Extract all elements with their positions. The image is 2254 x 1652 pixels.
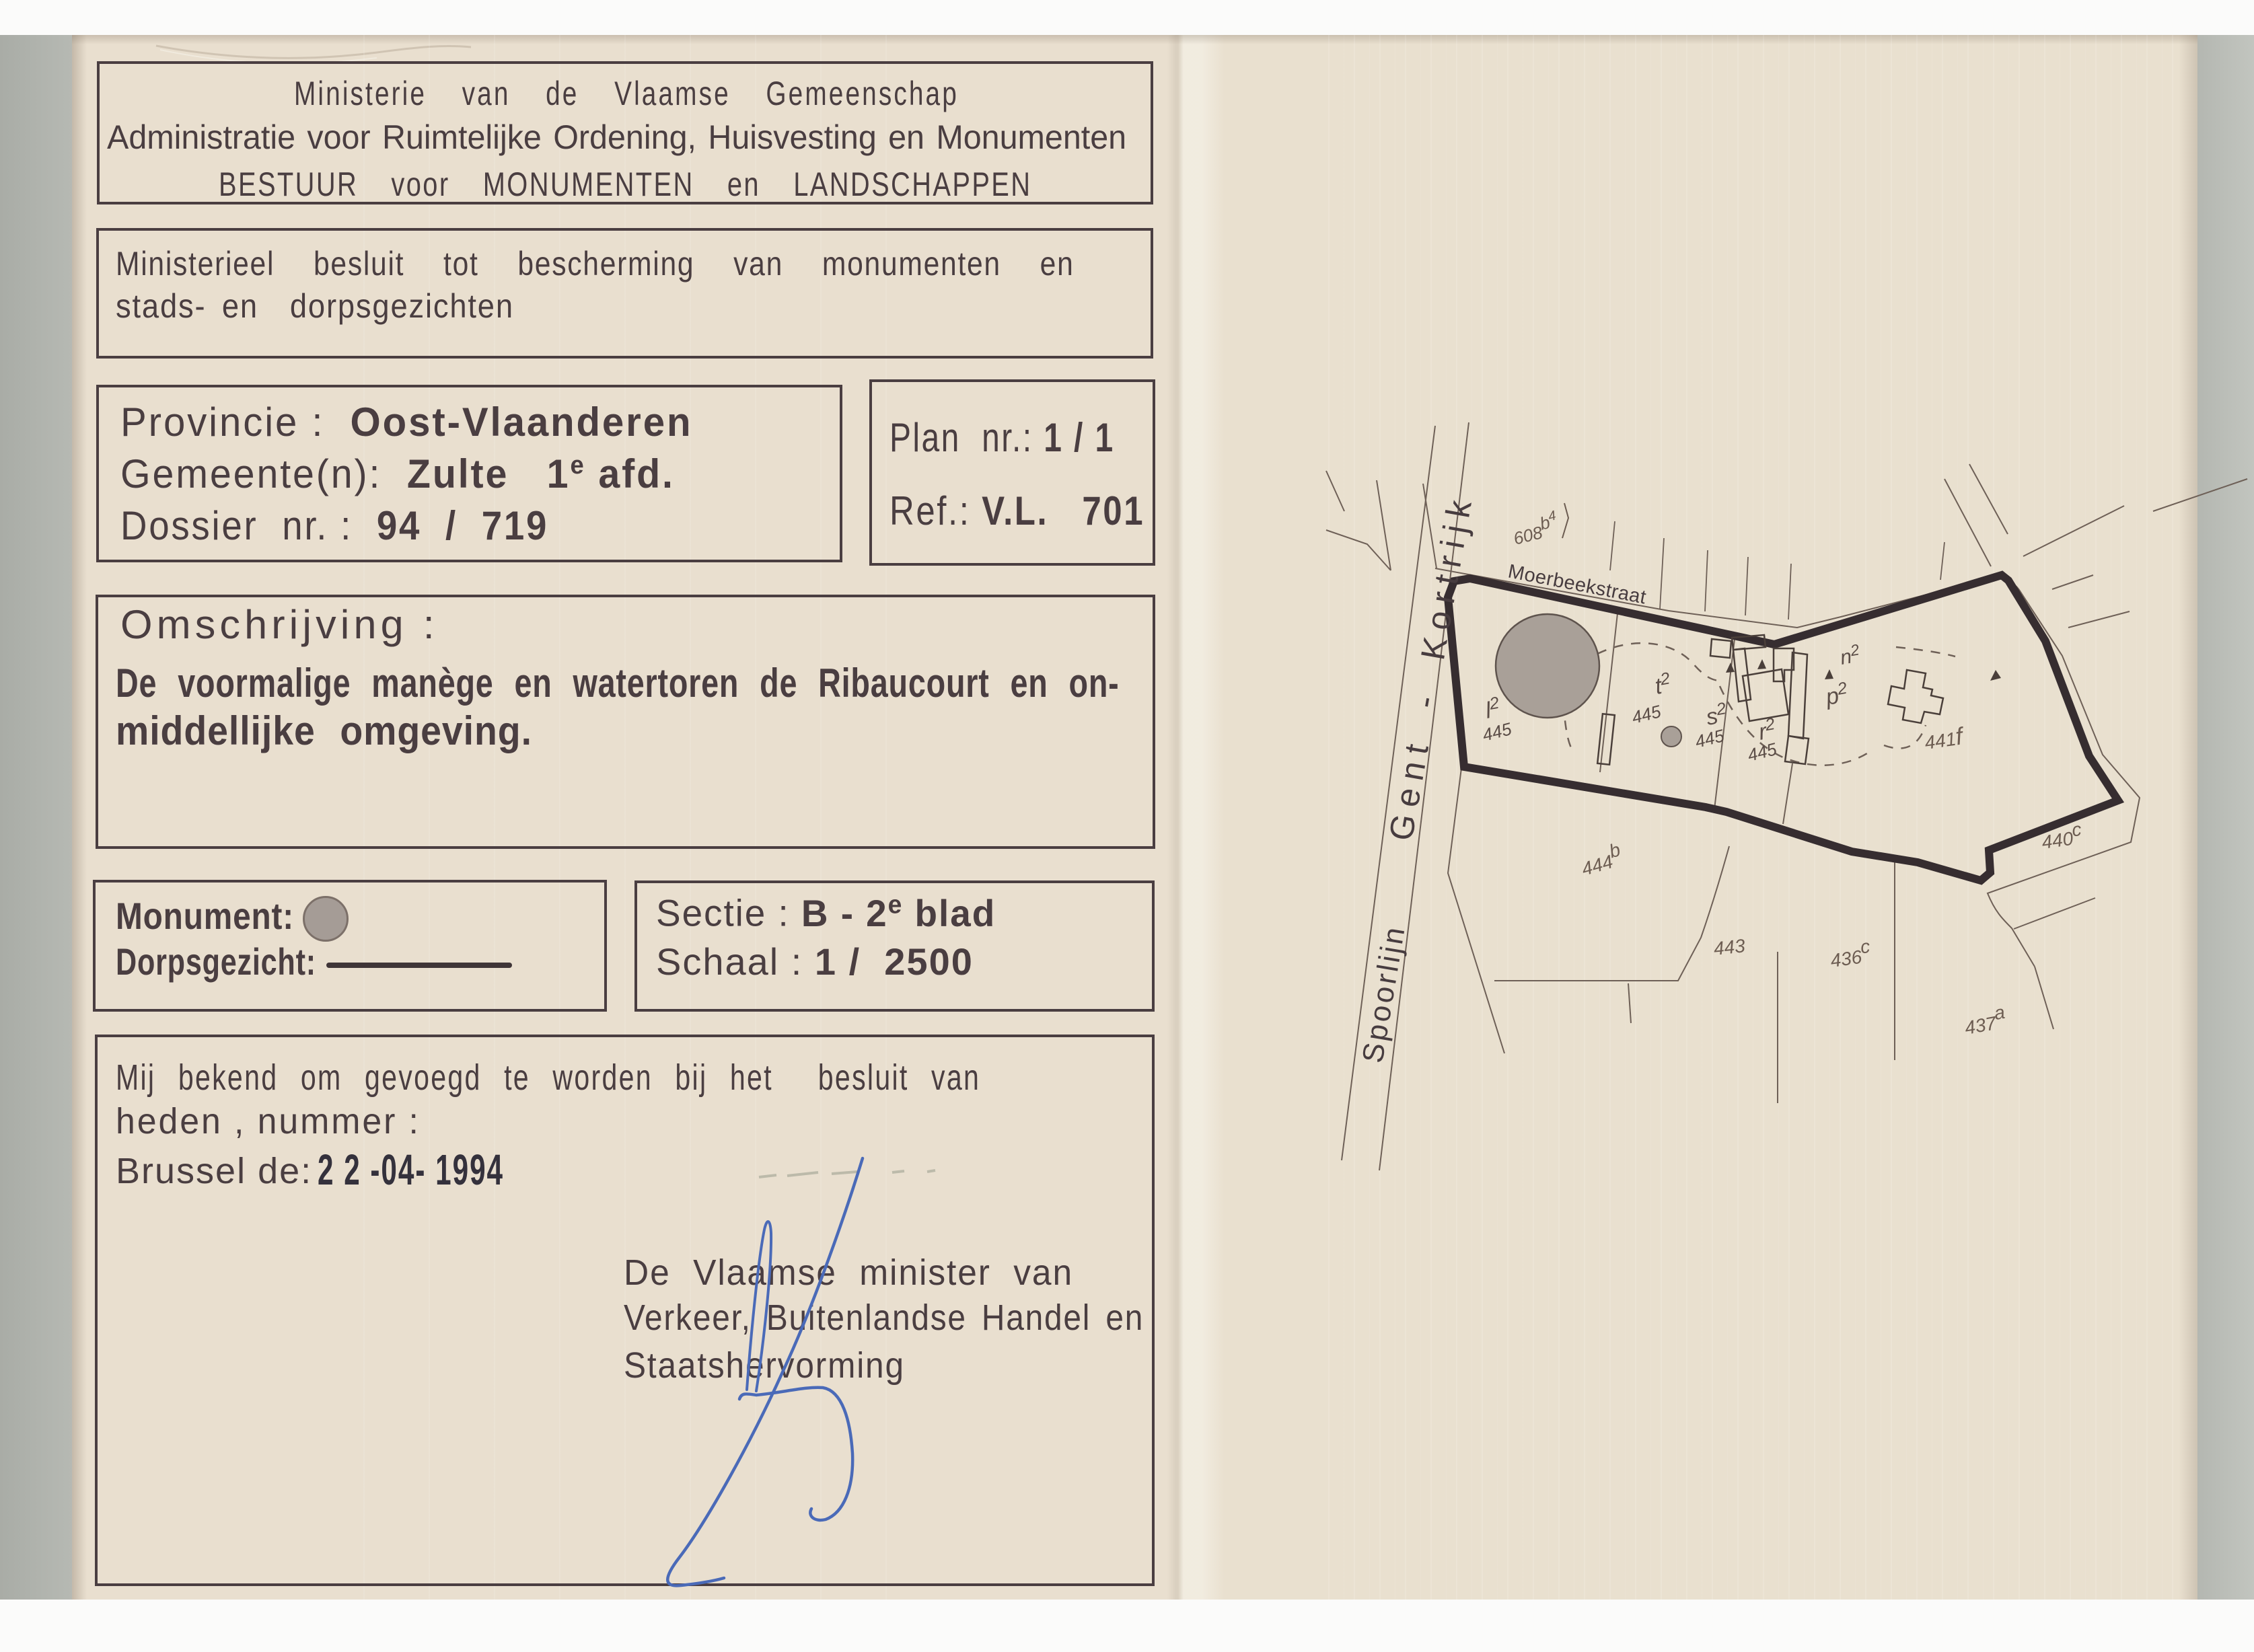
svg-text:Spoorlijn: Spoorlijn [1356, 922, 1412, 1065]
svg-text:l2: l2 [1483, 693, 1502, 724]
svg-text:s2: s2 [1704, 699, 1729, 730]
svg-text:445: 445 [1745, 739, 1779, 765]
svg-text:441f: 441f [1922, 722, 1967, 755]
svg-text:Gent - Kortrijk: Gent - Kortrijk [1382, 490, 1480, 843]
svg-text:n2: n2 [1838, 640, 1862, 669]
svg-text:t2: t2 [1652, 669, 1673, 699]
svg-text:444b: 444b [1576, 839, 1625, 879]
svg-text:p2: p2 [1823, 679, 1850, 710]
svg-text:445: 445 [1480, 718, 1514, 745]
svg-text:445: 445 [1630, 701, 1663, 728]
svg-text:443: 443 [1712, 935, 1746, 959]
svg-text:437a: 437a [1961, 1002, 2008, 1039]
svg-text:436c: 436c [1828, 936, 1873, 971]
svg-text:608b4: 608b4 [1509, 508, 1562, 548]
